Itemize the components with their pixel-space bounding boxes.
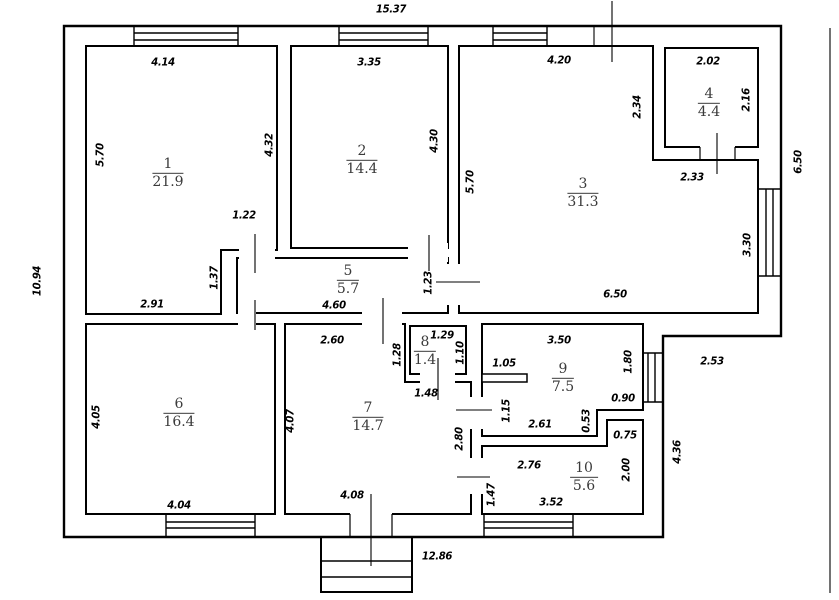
window-room1-top: [134, 26, 238, 46]
window-room6-bottom: [166, 514, 255, 537]
dimension-label: 1.48: [414, 387, 438, 400]
window-room9-right: [643, 353, 663, 402]
room-area: 14.4: [346, 161, 377, 177]
dimension-label: 2.76: [517, 459, 541, 472]
dimension-label: 15.37: [376, 3, 406, 16]
porch: [321, 537, 412, 592]
room-area: 21.9: [152, 174, 183, 190]
floor-plan-canvas: 1 21.9 2 14.4 3 31.3 4 4.4 5 5.7 6 16.4 …: [0, 0, 839, 600]
dimension-label: 4.20: [547, 54, 571, 67]
dimension-label: 4.05: [90, 405, 103, 429]
window-room2-top: [339, 26, 428, 46]
dimension-label: 2.02: [696, 55, 720, 68]
dimension-label: 1.05: [492, 357, 516, 370]
dimension-label: 1.80: [622, 350, 635, 374]
dimension-label: 3.52: [539, 496, 563, 509]
window-room3-right: [759, 189, 781, 276]
window-room3-top: [493, 26, 547, 46]
dimension-label: 1.37: [208, 266, 221, 290]
dimension-label: 4.30: [428, 129, 441, 153]
room-label-2: 2 14.4: [346, 144, 377, 176]
dimension-label: 4.07: [284, 409, 297, 433]
room-area: 31.3: [567, 194, 598, 210]
room-label-3: 3 31.3: [567, 177, 598, 209]
door-hall-room7: [362, 309, 402, 328]
dimension-label: 10.94: [31, 266, 44, 296]
door-room7-room9: [466, 397, 486, 429]
dimension-label: 6.50: [792, 150, 805, 174]
room-number: 6: [163, 397, 194, 414]
room-label-1: 1 21.9: [152, 157, 183, 189]
dimension-label: 1.28: [391, 343, 404, 367]
dimension-label: 2.33: [680, 171, 704, 184]
dimension-label: 4.60: [322, 299, 346, 312]
door-hall-room3: [446, 264, 463, 305]
dimension-label: 4.36: [671, 440, 684, 464]
dimension-label: 1.10: [454, 341, 467, 365]
dimension-label: 12.86: [422, 550, 452, 563]
dimension-label: 2.80: [453, 427, 466, 451]
room-number: 5: [337, 264, 359, 281]
porch-steps: [321, 561, 412, 577]
room-area: 7.5: [552, 379, 574, 395]
dimension-label: 1.15: [500, 399, 513, 423]
dimension-label: 0.53: [580, 409, 593, 433]
room-area: 5.6: [570, 478, 598, 494]
room-area: 4.4: [698, 104, 720, 120]
dimension-label: 3.35: [357, 56, 381, 69]
dimension-label: 2.34: [631, 95, 644, 119]
partition-stub: [482, 374, 527, 382]
dimension-label: 6.50: [603, 288, 627, 301]
room-number: 4: [698, 87, 720, 104]
room-number: 9: [552, 362, 574, 379]
dimension-label: 2.00: [620, 458, 633, 482]
room-area: 16.4: [163, 414, 194, 430]
room-area: 14.7: [352, 418, 383, 434]
door-room1-hall: [239, 245, 275, 263]
dimension-label: 1.29: [430, 329, 454, 342]
dimension-label: 2.61: [528, 418, 552, 431]
dimension-label: 1.23: [422, 271, 435, 295]
dimension-label: 1.22: [232, 209, 256, 222]
room-area: 5.7: [337, 281, 359, 297]
porch-outline: [321, 537, 412, 592]
dimension-label: 2.53: [700, 355, 724, 368]
room-label-9: 9 7.5: [552, 362, 574, 394]
room-number: 10: [570, 461, 598, 478]
dimension-label: 4.14: [151, 56, 175, 69]
dimension-label: 4.04: [167, 499, 191, 512]
room-number: 2: [346, 144, 377, 161]
dimension-label: 1.47: [485, 483, 498, 507]
room-number: 1: [152, 157, 183, 174]
dimension-label: 5.70: [94, 143, 107, 167]
window-room10-bottom: [484, 514, 573, 537]
room-label-6: 6 16.4: [163, 397, 194, 429]
dimension-label: 3.50: [547, 334, 571, 347]
room-label-7: 7 14.7: [352, 401, 383, 433]
door-hall-room6: [238, 309, 256, 328]
dimension-label: 3.30: [741, 233, 754, 257]
door-room2-hall: [408, 243, 448, 262]
door-room7-room10: [466, 458, 486, 494]
room-label-5: 5 5.7: [337, 264, 359, 296]
dimension-label: 0.90: [611, 392, 635, 405]
room-label-4: 4 4.4: [698, 87, 720, 119]
room-number: 7: [352, 401, 383, 418]
dimension-label: 5.70: [464, 170, 477, 194]
dimension-label: 4.32: [263, 133, 276, 157]
dimension-label: 2.16: [740, 88, 753, 112]
dimension-label: 2.91: [140, 298, 164, 311]
room-label-10: 10 5.6: [570, 461, 598, 493]
dimension-label: 4.08: [340, 489, 364, 502]
room-number: 3: [567, 177, 598, 194]
dimension-label: 2.60: [320, 334, 344, 347]
dimension-label: 0.75: [613, 429, 637, 442]
room-area: 1.4: [414, 352, 436, 368]
